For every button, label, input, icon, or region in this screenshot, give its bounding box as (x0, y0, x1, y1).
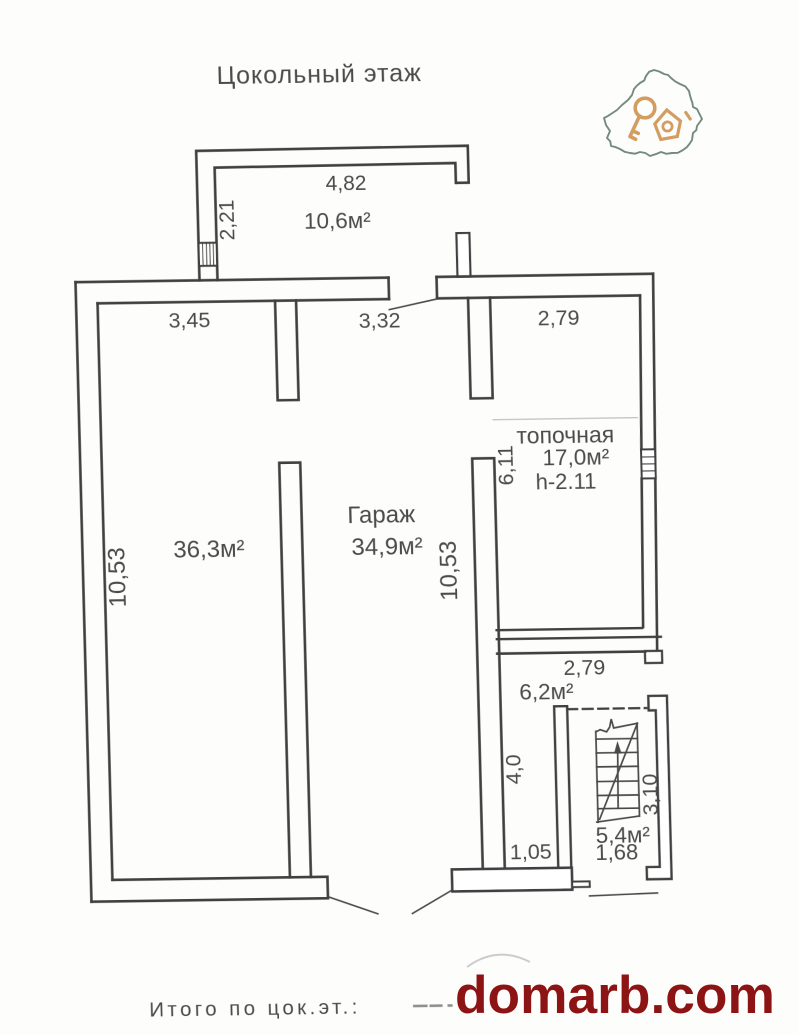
svg-text:1,68: 1,68 (595, 839, 638, 865)
svg-text:h-2.11: h-2.11 (535, 469, 596, 495)
svg-text:3,45: 3,45 (168, 308, 210, 333)
svg-text:6,2м²: 6,2м² (519, 679, 574, 705)
svg-text:10,53: 10,53 (435, 541, 464, 601)
svg-text:3,32: 3,32 (358, 308, 400, 333)
svg-text:36,3м²: 36,3м² (173, 536, 245, 564)
svg-text:6,11: 6,11 (493, 445, 518, 486)
svg-text:Итого по цок.эт.:: Итого по цок.эт.: (149, 995, 361, 1021)
svg-text:Цокольный этаж: Цокольный этаж (216, 59, 422, 90)
svg-text:4,0: 4,0 (501, 754, 526, 784)
svg-text:34,9м²: 34,9м² (351, 533, 423, 561)
svg-text:3,10: 3,10 (638, 773, 663, 815)
svg-text:1,05: 1,05 (510, 839, 552, 864)
svg-text:17,0м²: 17,0м² (542, 444, 610, 470)
svg-text:domarb.com: domarb.com (455, 966, 775, 1025)
svg-text:10,53: 10,53 (103, 547, 132, 607)
svg-text:2,21: 2,21 (215, 199, 239, 240)
svg-text:Гараж: Гараж (347, 501, 415, 529)
svg-text:2,79: 2,79 (537, 306, 579, 331)
svg-text:10,6м²: 10,6м² (304, 208, 372, 234)
svg-text:4,82: 4,82 (325, 172, 366, 196)
svg-text:2,79: 2,79 (563, 656, 605, 681)
